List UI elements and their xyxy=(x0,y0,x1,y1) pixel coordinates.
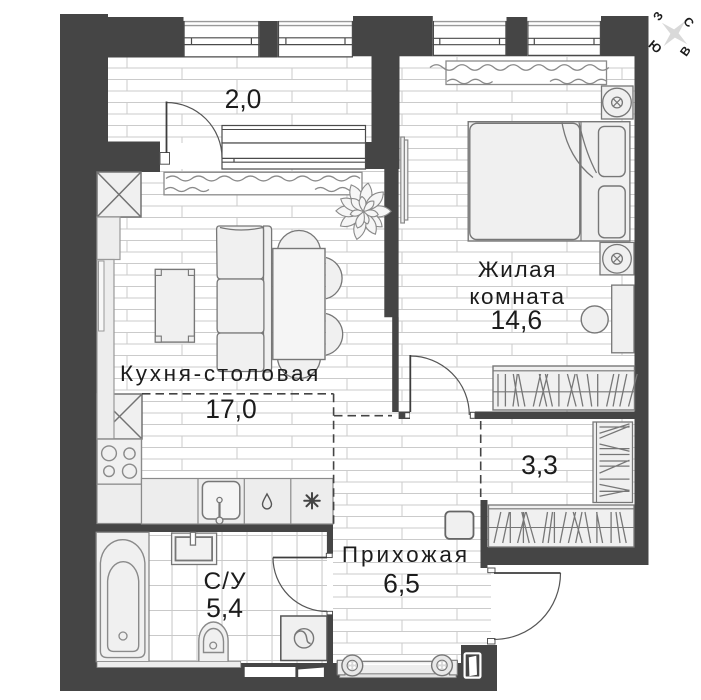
svg-text:комната: комната xyxy=(469,284,565,309)
svg-text:С/У: С/У xyxy=(203,568,246,595)
svg-text:5,4: 5,4 xyxy=(206,593,243,623)
svg-text:Кухня-столовая: Кухня-столовая xyxy=(120,361,321,386)
svg-text:6,5: 6,5 xyxy=(383,569,420,599)
svg-text:2,0: 2,0 xyxy=(225,84,262,114)
svg-text:Прихожая: Прихожая xyxy=(342,542,470,567)
svg-text:17,0: 17,0 xyxy=(205,394,257,424)
svg-text:Жилая: Жилая xyxy=(478,257,557,282)
svg-text:3,3: 3,3 xyxy=(521,450,558,480)
svg-text:14,6: 14,6 xyxy=(491,305,543,335)
